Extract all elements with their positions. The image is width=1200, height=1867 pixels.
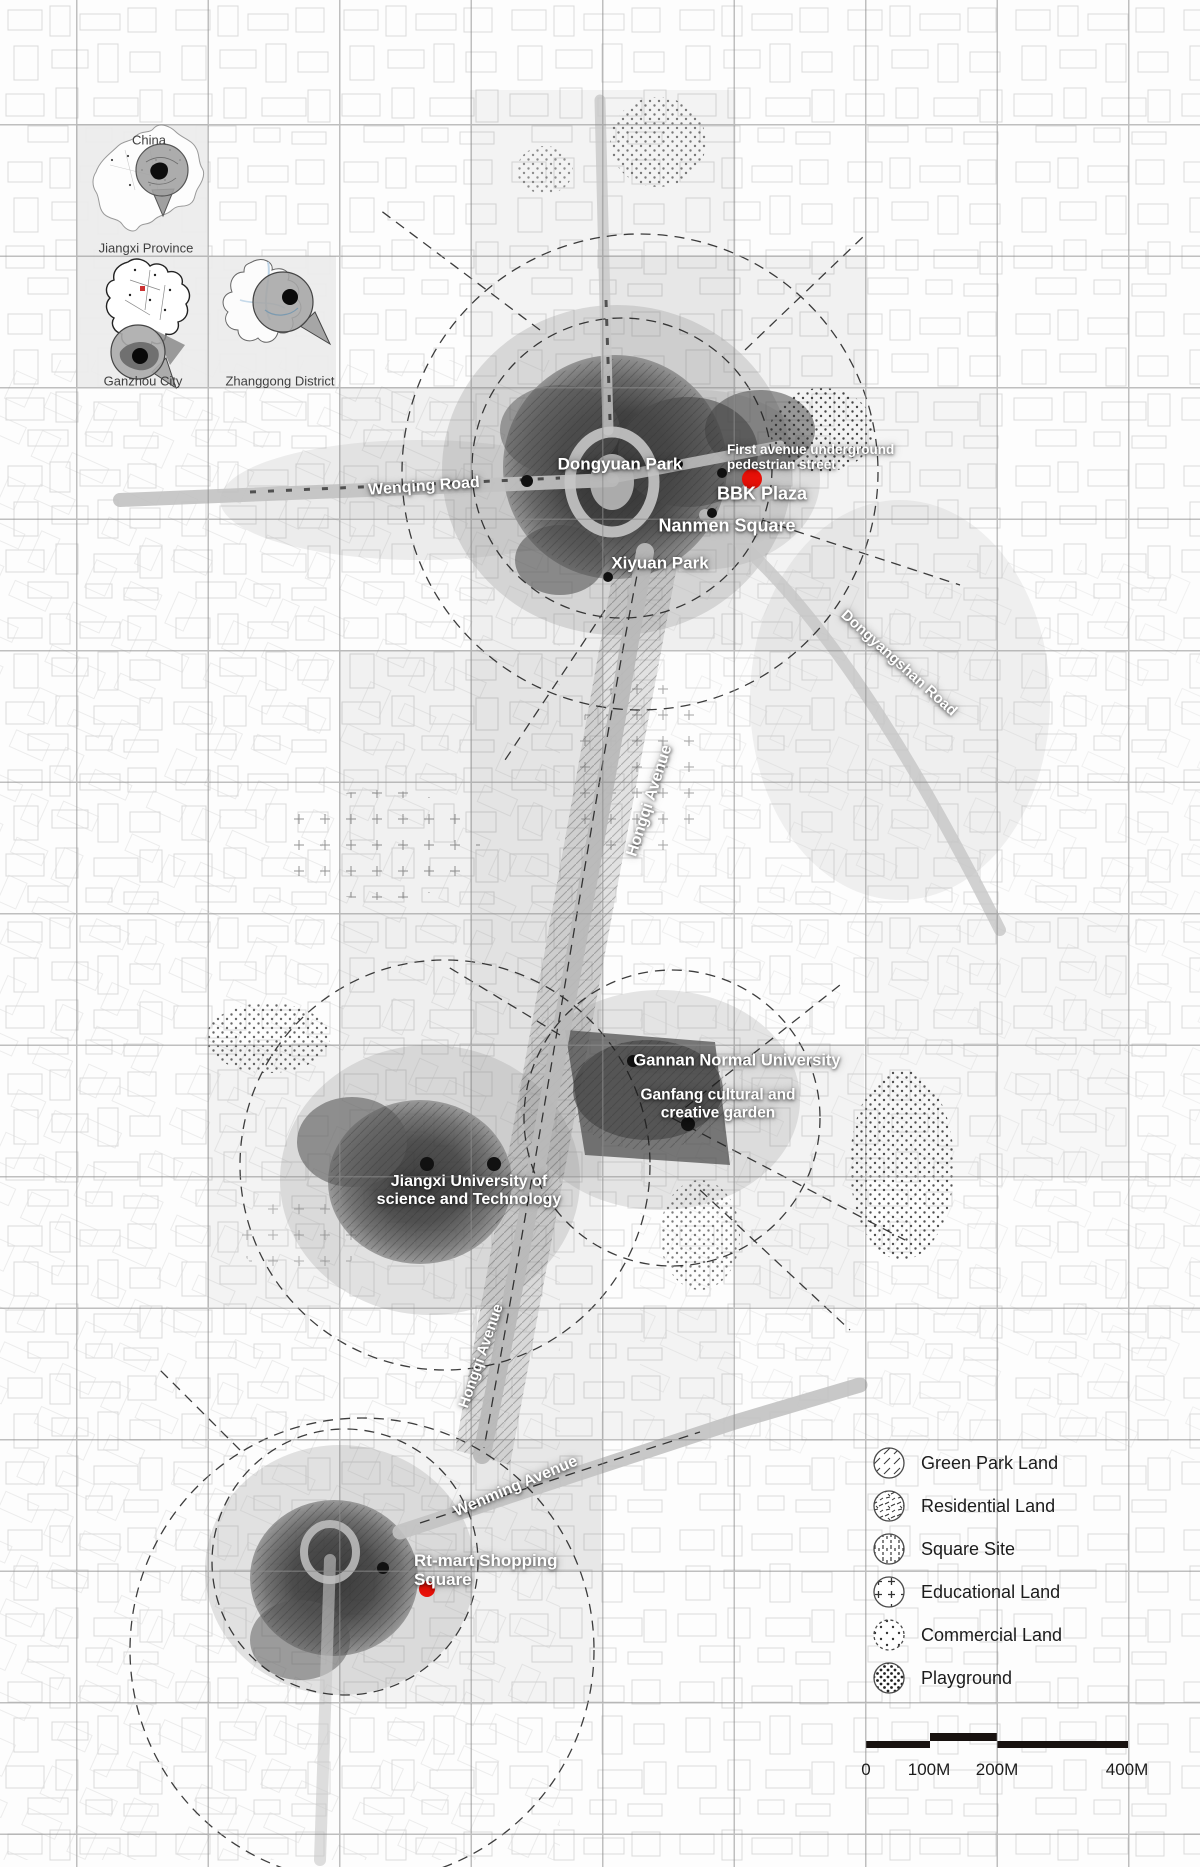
legend-label: Square Site (921, 1539, 1015, 1560)
label-ganfang-garden-line2: creative garden (640, 1104, 795, 1122)
legend-item-square-site: Square Site (872, 1532, 1062, 1566)
poi-dot-rt-mart (377, 1562, 389, 1574)
scale-tick-0: 0 (861, 1760, 870, 1780)
site-analysis-map: China Jiangxi Province Ganzhou City Zhan… (0, 0, 1200, 1867)
legend-item-playground: Playground (872, 1661, 1062, 1695)
inset-label-zhanggong-district: Zhanggong District (225, 374, 334, 389)
poi-dot-pedestrian-street (717, 468, 727, 478)
legend-label: Green Park Land (921, 1453, 1058, 1474)
label-nanmen-square: Nanmen Square (658, 516, 795, 537)
scale-tick-400m: 400M (1106, 1760, 1149, 1780)
inset-label-ganzhou-city: Ganzhou City (104, 374, 183, 389)
inset-label-jiangxi-province: Jiangxi Province (99, 241, 194, 256)
poi-dot-jiangxi-university-east (487, 1157, 501, 1171)
scribble-circle-icon (872, 1489, 906, 1523)
dense-dots-circle-icon (872, 1661, 906, 1695)
label-underground-street-line2: pedestrian street (727, 457, 894, 472)
label-underground-street: First avenue underground pedestrian stre… (727, 442, 894, 473)
poi-dot-xiyuan-park (603, 572, 613, 582)
label-ganfang-garden-line1: Ganfang cultural and (640, 1086, 795, 1104)
label-gannan-normal-university: Gannan Normal University (633, 1052, 840, 1071)
label-jiangxi-university-line2: science and Technology (377, 1191, 562, 1209)
vertical-dash-circle-icon (872, 1532, 906, 1566)
plus-hatch-circle-icon (872, 1575, 906, 1609)
legend-label: Residential Land (921, 1496, 1055, 1517)
label-rt-mart-shopping-square: Rt-mart Shopping Square (414, 1551, 558, 1590)
sparse-dots-circle-icon (872, 1618, 906, 1652)
label-jiangxi-university-line1: Jiangxi University of (377, 1173, 562, 1191)
label-underground-street-line1: First avenue underground (727, 442, 894, 457)
diagonal-hatch-circle-icon (872, 1446, 906, 1480)
red-square-marker (140, 286, 145, 291)
label-ganfang-garden: Ganfang cultural and creative garden (640, 1086, 795, 1121)
scale-tick-200m: 200M (976, 1760, 1019, 1780)
legend: Green Park Land Residential Land Square … (872, 1446, 1062, 1695)
label-jiangxi-university: Jiangxi University of science and Techno… (377, 1173, 562, 1209)
inset-label-china: China (132, 133, 166, 148)
legend-item-educational-land: Educational Land (872, 1575, 1062, 1609)
legend-item-residential-land: Residential Land (872, 1489, 1062, 1523)
poi-dot-jiangxi-university-west (420, 1157, 434, 1171)
legend-item-commercial-land: Commercial Land (872, 1618, 1062, 1652)
label-dongyuan-park: Dongyuan Park (558, 454, 683, 473)
label-xiyuan-park: Xiyuan Park (611, 553, 708, 572)
label-rt-mart-line2: Square (414, 1570, 558, 1589)
legend-label: Educational Land (921, 1582, 1060, 1603)
poi-dot-wenqing-road (521, 475, 533, 487)
legend-item-green-park-land: Green Park Land (872, 1446, 1062, 1480)
legend-label: Commercial Land (921, 1625, 1062, 1646)
scale-tick-100m: 100M (908, 1760, 951, 1780)
legend-label: Playground (921, 1668, 1012, 1689)
label-bbk-plaza: BBK Plaza (717, 484, 807, 505)
label-rt-mart-line1: Rt-mart Shopping (414, 1551, 558, 1570)
